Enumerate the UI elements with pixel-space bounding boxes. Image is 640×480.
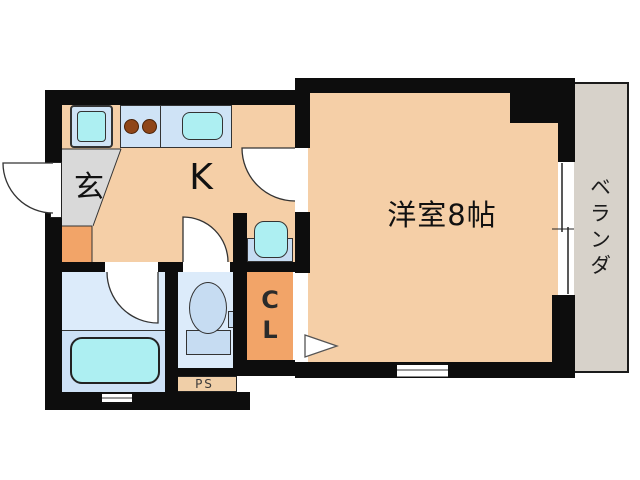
bathroom-window: [102, 392, 132, 404]
wall-toilet-bottom: [165, 368, 247, 376]
wall-corner-pillar: [510, 78, 558, 123]
veranda-label: ベランダ: [572, 84, 627, 371]
veranda-sliding-window: [558, 162, 574, 295]
counter-divider: [160, 105, 161, 148]
main-room-window: [397, 363, 448, 377]
closet-door-opening: [295, 273, 308, 362]
kitchen-door-opening: [295, 148, 308, 212]
floorplan-canvas: ベランダ CL PS: [0, 0, 640, 480]
toilet-bowl-icon: [189, 282, 227, 334]
kitchen-label: K: [178, 156, 224, 198]
wall-main-right-upper: [558, 78, 575, 162]
wall-toilet-closet-divider: [233, 213, 247, 376]
closet-label: CL: [247, 272, 293, 360]
wall-bottom-left-block: [45, 392, 250, 410]
entrance-label: 玄: [72, 166, 106, 202]
pipe-space-box: PS: [172, 376, 237, 392]
entrance-step: [62, 226, 92, 262]
kitchen-sink-icon: [182, 112, 223, 140]
wall-top-left-block: [45, 90, 295, 105]
toilet-door-opening: [183, 262, 230, 272]
wall-left-outer: [45, 90, 62, 410]
closet-area: CL: [247, 272, 293, 360]
entrance-door-leaf: [50, 162, 62, 218]
wall-main-left-lower: [295, 212, 310, 273]
washbasin-bowl-icon: [254, 221, 288, 258]
main-room-label: 洋室8帖: [352, 195, 532, 231]
stove-burner-icon: [142, 119, 157, 134]
bathroom-door-opening: [105, 262, 158, 272]
bathtub-icon: [70, 337, 160, 384]
pipe-space-label: PS: [173, 377, 236, 391]
wall-main-left-upper: [295, 78, 310, 148]
veranda-area: ベランダ: [570, 82, 629, 373]
stove-burner-icon: [124, 119, 139, 134]
washing-machine-icon: [77, 111, 106, 142]
